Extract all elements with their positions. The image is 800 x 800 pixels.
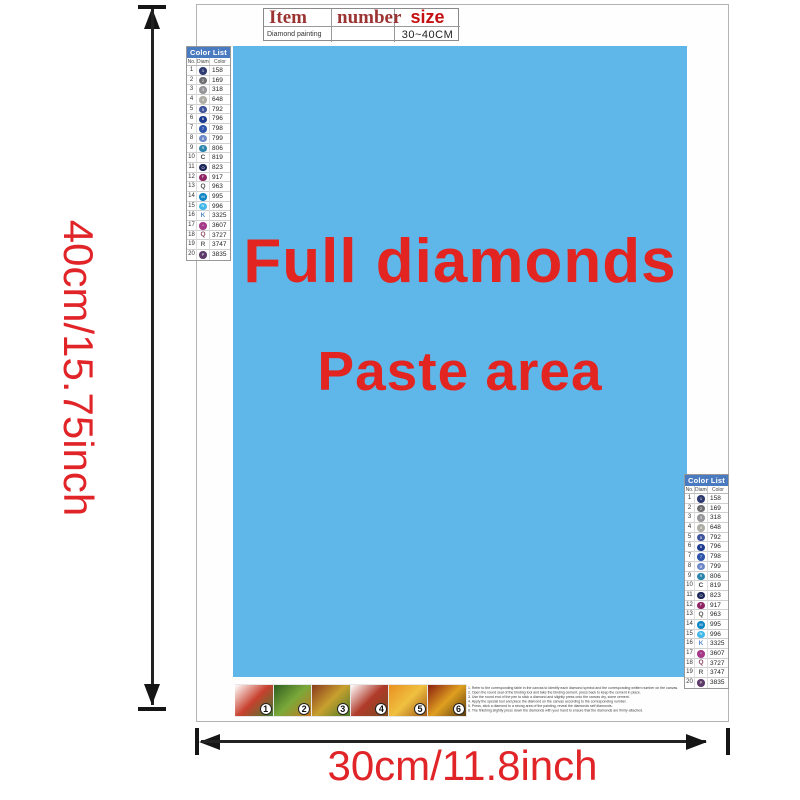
dmc-color-code: 169: [210, 76, 230, 86]
diamond-symbol-icon: 7: [199, 125, 207, 133]
row-number: 13: [685, 610, 695, 620]
step-thumbnail: 3: [312, 684, 351, 717]
dmc-color-code: 798: [210, 124, 230, 134]
diamond-symbol-icon: 2: [199, 77, 207, 85]
diamond-symbol-icon: M: [199, 193, 207, 201]
step-number-badge: 1: [260, 703, 272, 715]
diamond-symbol-cell: M: [197, 192, 210, 202]
height-arrow-down-icon: [144, 684, 160, 705]
row-number: 12: [685, 601, 695, 611]
color-list-rows: 1 1 158 2 2 169 3 3 318 4: [187, 66, 230, 260]
step-number-badge: 5: [414, 703, 426, 715]
diamond-symbol-cell: 4: [197, 95, 210, 105]
dmc-color-code: 996: [210, 202, 230, 212]
item-info-table: Item number size Diamond painting 30~40C…: [263, 8, 459, 41]
size-value: 30~40CM: [395, 27, 460, 42]
color-list-row: 10 C 819: [187, 153, 230, 163]
diamond-symbol-icon: *: [199, 222, 207, 230]
step-number-badge: 2: [298, 703, 310, 715]
step-thumbnail: 2: [274, 684, 313, 717]
row-number: 18: [187, 231, 197, 241]
row-number: 4: [685, 523, 695, 533]
dmc-color-code: 796: [708, 542, 728, 552]
diamond-symbol-cell: 4: [695, 523, 708, 533]
diamond-symbol-cell: 5: [197, 105, 210, 115]
dmc-color-code: 169: [708, 504, 728, 514]
color-list-row: 18 Q 3727: [685, 659, 728, 669]
color-list-row: 10 C 819: [685, 581, 728, 591]
diamond-symbol-cell: 8: [695, 562, 708, 572]
diamond-symbol-cell: Q: [197, 182, 210, 192]
diamond-symbol-icon: O: [199, 164, 207, 172]
row-number: 3: [187, 85, 197, 95]
dmc-color-code: 798: [708, 552, 728, 562]
diamond-symbol-icon: 9: [199, 145, 207, 153]
diamond-symbol-icon: 4: [697, 524, 705, 532]
color-list-row: 2 2 169: [187, 76, 230, 86]
row-number: 2: [187, 76, 197, 86]
diamond-symbol-icon: K: [201, 213, 206, 220]
dmc-color-code: 995: [708, 620, 728, 630]
dmc-color-code: 819: [708, 581, 728, 591]
color-list-row: 3 3 318: [685, 513, 728, 523]
color-list-row: 15 N 996: [187, 202, 230, 212]
col-color: Color: [708, 486, 728, 493]
color-list-row: 8 8 799: [187, 134, 230, 144]
dmc-color-code: 806: [210, 144, 230, 154]
dmc-color-code: 3747: [708, 668, 728, 678]
diamond-symbol-icon: C: [699, 583, 704, 590]
diamond-symbol-cell: 1: [197, 66, 210, 76]
dmc-color-code: 318: [210, 85, 230, 95]
row-number: 17: [187, 221, 197, 231]
dmc-color-code: 3325: [708, 639, 728, 649]
color-list-column-headers: No. Diamond Color: [187, 58, 230, 66]
diamond-symbol-cell: M: [695, 620, 708, 630]
row-number: 16: [187, 211, 197, 221]
dmc-color-code: 158: [210, 66, 230, 76]
dmc-color-code: 648: [210, 95, 230, 105]
row-number: 2: [685, 504, 695, 514]
diamond-symbol-icon: N: [697, 631, 705, 639]
color-list-row: 19 R 3747: [187, 240, 230, 250]
dmc-color-code: 823: [708, 591, 728, 601]
diamond-symbol-cell: C: [197, 153, 210, 163]
step-thumbnail: 1: [235, 684, 274, 717]
color-list-row: 4 4 648: [187, 95, 230, 105]
row-number: 1: [685, 494, 695, 504]
diamond-symbol-icon: 5: [697, 534, 705, 542]
dmc-color-code: 648: [708, 523, 728, 533]
width-dimension-label: 30cm/11.8inch: [196, 742, 729, 790]
color-list-row: 13 Q 963: [187, 182, 230, 192]
dmc-color-code: 796: [210, 114, 230, 124]
step-thumbnail: 5: [389, 684, 428, 717]
row-number: 9: [187, 144, 197, 154]
diamond-symbol-cell: 6: [197, 114, 210, 124]
diamond-symbol-icon: *: [697, 650, 705, 658]
paste-area-title: Full diamonds: [233, 226, 687, 297]
color-list-row: 1 1 158: [685, 494, 728, 504]
row-number: 12: [187, 173, 197, 183]
dmc-color-code: 819: [210, 153, 230, 163]
diamond-symbol-cell: *: [197, 221, 210, 231]
color-list-row: 12 F 917: [685, 601, 728, 611]
diamond-symbol-cell: 3: [197, 85, 210, 95]
color-list-left: Color List No. Diamond Color 1 1 158 2 2…: [186, 46, 231, 261]
dmc-color-code: 318: [708, 513, 728, 523]
diamond-symbol-icon: 8: [199, 135, 207, 143]
diamond-symbol-cell: 8: [197, 134, 210, 144]
diamond-symbol-icon: Q: [698, 612, 703, 619]
row-number: 15: [685, 630, 695, 640]
row-number: 19: [685, 668, 695, 678]
diamond-symbol-icon: Q: [200, 184, 205, 191]
dmc-color-code: 158: [708, 494, 728, 504]
height-arrow-bottom-cap: [138, 707, 166, 711]
paste-area-subtitle: Paste area: [233, 339, 687, 403]
diamond-symbol-cell: P: [197, 250, 210, 260]
color-list-column-headers: No. Diamond Color: [685, 486, 728, 494]
dmc-color-code: 3747: [210, 240, 230, 250]
color-list-row: 7 7 798: [685, 552, 728, 562]
col-color: Color: [210, 58, 230, 65]
diamond-symbol-icon: 6: [697, 544, 705, 552]
diamond-symbol-icon: O: [697, 592, 705, 600]
diamond-symbol-icon: 9: [697, 573, 705, 581]
color-list-row: 6 6 796: [187, 114, 230, 124]
dmc-color-code: 995: [210, 192, 230, 202]
color-list-title: Color List: [187, 47, 230, 58]
diamond-symbol-icon: P: [199, 251, 207, 259]
diamond-symbol-cell: R: [695, 668, 708, 678]
diamond-symbol-cell: 7: [197, 124, 210, 134]
color-list-row: 9 9 806: [187, 144, 230, 154]
diamond-symbol-cell: O: [695, 591, 708, 601]
item-value: Diamond painting: [264, 27, 332, 42]
row-number: 15: [187, 202, 197, 212]
diamond-symbol-cell: N: [695, 630, 708, 640]
diamond-symbol-cell: 3: [695, 513, 708, 523]
height-arrow-line: [151, 9, 154, 705]
dmc-color-code: 3727: [210, 231, 230, 241]
row-number: 19: [187, 240, 197, 250]
dmc-color-code: 792: [210, 105, 230, 115]
col-diamond: Diamond: [197, 58, 210, 65]
dmc-color-code: 792: [708, 533, 728, 543]
step-number-badge: 4: [375, 703, 387, 715]
row-number: 8: [187, 134, 197, 144]
diamond-symbol-cell: 2: [695, 504, 708, 514]
color-list-row: 19 R 3747: [685, 668, 728, 678]
color-list-row: 20 P 3835: [187, 250, 230, 260]
row-number: 7: [187, 124, 197, 134]
diamond-symbol-cell: K: [695, 639, 708, 649]
dmc-color-code: 917: [210, 173, 230, 183]
number-value: [332, 27, 395, 42]
color-list-row: 8 8 799: [685, 562, 728, 572]
row-number: 5: [685, 533, 695, 543]
diamond-symbol-cell: R: [197, 240, 210, 250]
color-list-row: 16 K 3325: [685, 639, 728, 649]
dmc-color-code: 3727: [708, 659, 728, 669]
color-list-row: 16 K 3325: [187, 211, 230, 221]
diamond-symbol-icon: 1: [199, 67, 207, 75]
row-number: 13: [187, 182, 197, 192]
instruction-line: 6. The finishing slightly press down the…: [468, 709, 712, 714]
dmc-color-code: 3607: [708, 649, 728, 659]
diamond-symbol-icon: Q: [698, 660, 703, 667]
color-list-row: 15 N 996: [685, 630, 728, 640]
row-number: 14: [685, 620, 695, 630]
diamond-symbol-icon: 8: [697, 563, 705, 571]
row-number: 16: [685, 639, 695, 649]
diamond-symbol-cell: 9: [695, 572, 708, 582]
item-col-header: Item: [264, 9, 332, 27]
diamond-symbol-cell: K: [197, 211, 210, 221]
diamond-symbol-icon: F: [697, 602, 705, 610]
dmc-color-code: 823: [210, 163, 230, 173]
diamond-symbol-cell: 7: [695, 552, 708, 562]
diamond-symbol-cell: C: [695, 581, 708, 591]
row-number: 3: [685, 513, 695, 523]
diamond-symbol-cell: F: [197, 173, 210, 183]
row-number: 14: [187, 192, 197, 202]
col-no: No.: [187, 58, 197, 65]
diamond-symbol-cell: 6: [695, 542, 708, 552]
color-list-row: 6 6 796: [685, 542, 728, 552]
step-thumbnail: 4: [351, 684, 390, 717]
diamond-symbol-icon: 4: [199, 96, 207, 104]
diamond-symbol-cell: O: [197, 163, 210, 173]
color-list-row: 13 Q 963: [685, 610, 728, 620]
diamond-symbol-cell: 9: [197, 144, 210, 154]
diamond-symbol-icon: 2: [697, 505, 705, 513]
diamond-symbol-icon: C: [201, 155, 206, 162]
row-number: 11: [187, 163, 197, 173]
color-list-row: 3 3 318: [187, 85, 230, 95]
color-list-row: 18 Q 3727: [187, 231, 230, 241]
dmc-color-code: 963: [708, 610, 728, 620]
diamond-symbol-icon: 1: [697, 495, 705, 503]
step-number-badge: 3: [337, 703, 349, 715]
dmc-color-code: 3835: [210, 250, 230, 260]
diamond-symbol-cell: Q: [197, 231, 210, 241]
row-number: 5: [187, 105, 197, 115]
color-list-title: Color List: [685, 475, 728, 486]
color-list-row: 17 * 3607: [187, 221, 230, 231]
number-col-header: number: [332, 9, 395, 27]
color-list-right: Color List No. Diamond Color 1 1 158 2 2…: [684, 474, 729, 689]
row-number: 7: [685, 552, 695, 562]
diamond-symbol-cell: *: [695, 649, 708, 659]
diamond-symbol-icon: F: [199, 174, 207, 182]
row-number: 10: [187, 153, 197, 163]
diamond-symbol-cell: F: [695, 601, 708, 611]
diamond-symbol-cell: Q: [695, 610, 708, 620]
instructions-text: 1. Refer to the corresponding table in t…: [468, 686, 712, 716]
color-list-row: 7 7 798: [187, 124, 230, 134]
dmc-color-code: 3325: [210, 211, 230, 221]
diamond-symbol-icon: 7: [697, 553, 705, 561]
col-no: No.: [685, 486, 695, 493]
diamond-symbol-icon: 5: [199, 106, 207, 114]
row-number: 11: [685, 591, 695, 601]
step-thumbnails: 1 2 3 4 5 6: [235, 684, 467, 717]
dmc-color-code: 799: [210, 134, 230, 144]
diamond-symbol-icon: 3: [697, 514, 705, 522]
row-number: 1: [187, 66, 197, 76]
col-diamond: Diamond: [695, 486, 708, 493]
size-col-header: size: [395, 9, 460, 27]
diamond-symbol-icon: R: [201, 242, 206, 249]
diamond-symbol-icon: N: [199, 203, 207, 211]
row-number: 4: [187, 95, 197, 105]
diamond-symbol-icon: K: [699, 641, 704, 648]
dmc-color-code: 996: [708, 630, 728, 640]
row-number: 9: [685, 572, 695, 582]
diamond-symbol-cell: 1: [695, 494, 708, 504]
diamond-symbol-cell: Q: [695, 659, 708, 669]
paste-area: Full diamonds Paste area: [233, 46, 687, 677]
dmc-color-code: 3607: [210, 221, 230, 231]
dmc-color-code: 806: [708, 572, 728, 582]
diamond-symbol-cell: N: [197, 202, 210, 212]
diamond-symbol-icon: 3: [199, 86, 207, 94]
color-list-row: 12 F 917: [187, 173, 230, 183]
diamond-symbol-cell: 5: [695, 533, 708, 543]
color-list-row: 11 O 823: [685, 591, 728, 601]
step-number-badge: 6: [453, 703, 465, 715]
color-list-row: 4 4 648: [685, 523, 728, 533]
color-list-row: 14 M 995: [685, 620, 728, 630]
color-list-rows: 1 1 158 2 2 169 3 3 318 4: [685, 494, 728, 688]
product-image: Item number size Diamond painting 30~40C…: [0, 0, 800, 800]
row-number: 17: [685, 649, 695, 659]
color-list-row: 1 1 158: [187, 66, 230, 76]
row-number: 6: [685, 542, 695, 552]
diamond-symbol-icon: M: [697, 621, 705, 629]
color-list-row: 9 9 806: [685, 572, 728, 582]
diamond-symbol-icon: R: [699, 670, 704, 677]
dmc-color-code: 963: [210, 182, 230, 192]
color-list-row: 17 * 3607: [685, 649, 728, 659]
diamond-symbol-cell: 2: [197, 76, 210, 86]
row-number: 10: [685, 581, 695, 591]
color-list-row: 14 M 995: [187, 192, 230, 202]
dmc-color-code: 799: [708, 562, 728, 572]
height-dimension-label: 40cm/15.75inch: [54, 220, 102, 517]
color-list-row: 5 5 792: [187, 105, 230, 115]
diamond-symbol-icon: 6: [199, 116, 207, 124]
row-number: 6: [187, 114, 197, 124]
row-number: 18: [685, 659, 695, 669]
dmc-color-code: 917: [708, 601, 728, 611]
diamond-symbol-icon: Q: [200, 232, 205, 239]
step-thumbnail: 6: [428, 684, 467, 717]
color-list-row: 2 2 169: [685, 504, 728, 514]
color-list-row: 11 O 823: [187, 163, 230, 173]
row-number: 20: [187, 250, 197, 260]
color-list-row: 5 5 792: [685, 533, 728, 543]
row-number: 8: [685, 562, 695, 572]
